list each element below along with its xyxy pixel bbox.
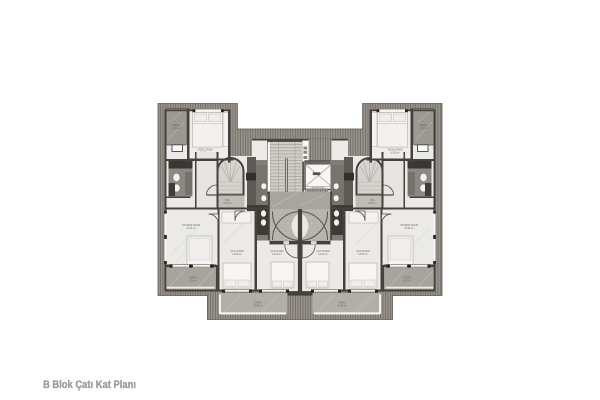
svg-text:8.00 m²: 8.00 m² xyxy=(189,280,197,283)
svg-text:B Blok Çatı Kat Planı: B Blok Çatı Kat Planı xyxy=(43,379,136,391)
svg-text:14.50 m²: 14.50 m² xyxy=(232,253,242,256)
svg-text:21.60 m²: 21.60 m² xyxy=(404,227,414,230)
svg-text:8.00 m²: 8.00 m² xyxy=(403,280,411,283)
svg-text:12.00 m²: 12.00 m² xyxy=(272,253,282,256)
svg-text:4.40 m²: 4.40 m² xyxy=(172,127,180,130)
svg-text:5.20 m²: 5.20 m² xyxy=(368,202,376,205)
svg-text:10.80 m²: 10.80 m² xyxy=(390,152,400,155)
svg-text:5.20 m²: 5.20 m² xyxy=(223,202,231,205)
svg-text:4.40 m²: 4.40 m² xyxy=(420,127,428,130)
svg-text:21.60 m²: 21.60 m² xyxy=(186,227,196,230)
svg-text:16.80 m²: 16.80 m² xyxy=(337,305,347,308)
svg-text:12.00 m²: 12.00 m² xyxy=(318,253,328,256)
svg-text:14.50 m²: 14.50 m² xyxy=(358,253,368,256)
svg-text:16.80 m²: 16.80 m² xyxy=(253,305,263,308)
